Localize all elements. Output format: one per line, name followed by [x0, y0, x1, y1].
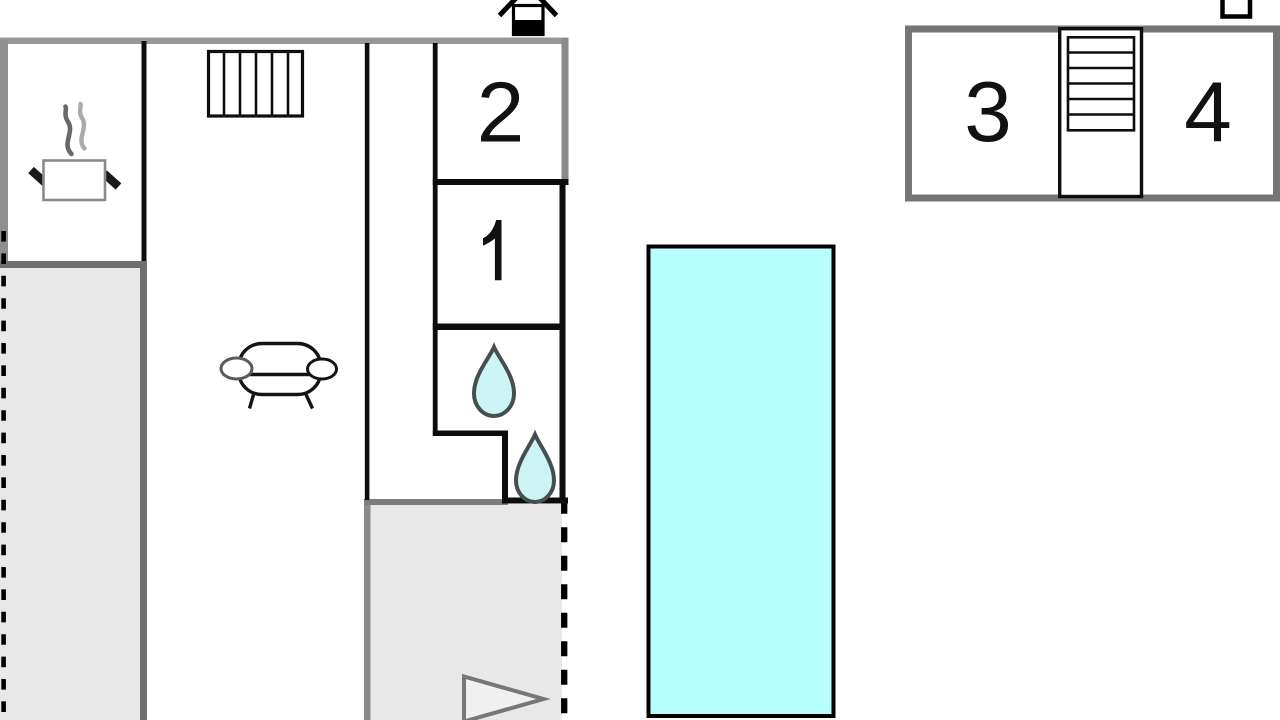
- svg-text:3: 3: [964, 65, 1012, 160]
- svg-text:2: 2: [477, 66, 525, 161]
- svg-text:4: 4: [1184, 66, 1232, 161]
